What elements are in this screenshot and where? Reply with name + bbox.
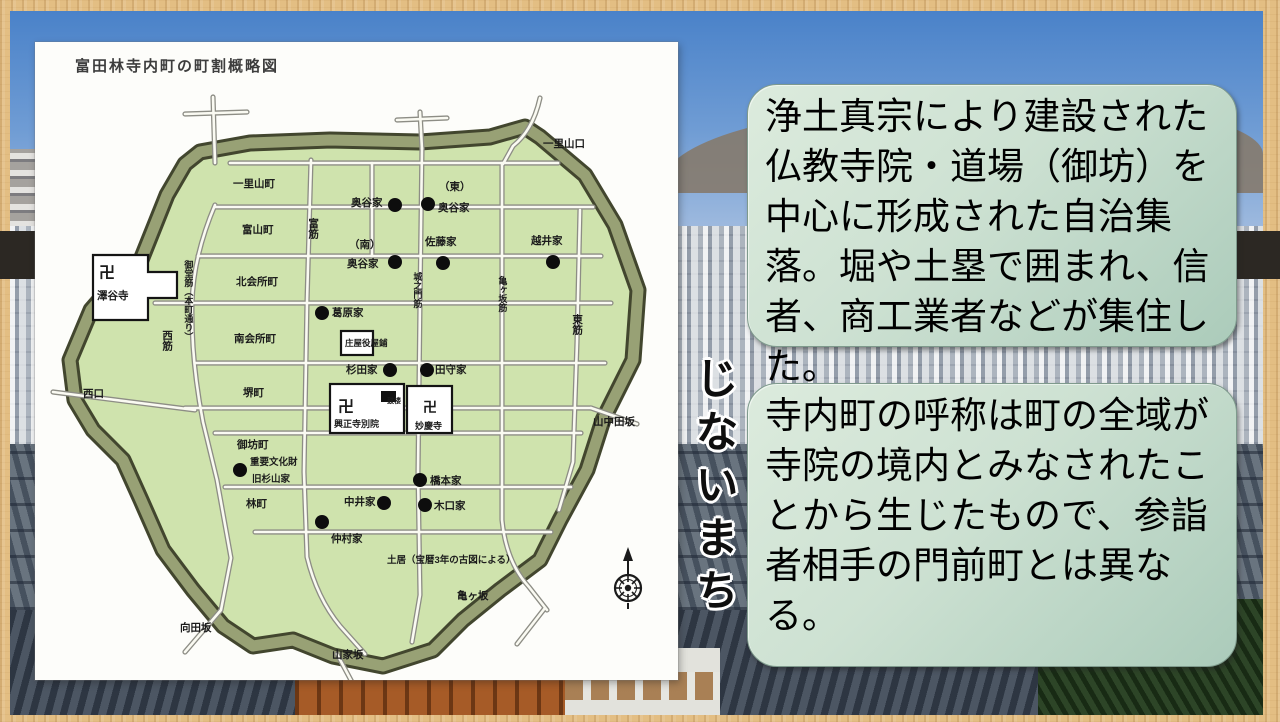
map-label-hayashicho: 林町: [246, 498, 267, 510]
map-label-myokeiji: 妙慶寺: [415, 421, 442, 431]
map-label-shoyayashiki: 庄屋役屋鋪: [345, 339, 388, 349]
map-label-koshiike: 越井家: [531, 235, 563, 247]
vertical-title-jinaimachi: じないまち: [682, 356, 744, 646]
map-label-nishisuji: 西筋: [161, 330, 173, 351]
map-label-doi-note: 土居（宝暦3年の古図による）: [387, 556, 516, 567]
map-label-okutani-higashi: 奥谷家: [438, 202, 470, 214]
map-label-tomiyamacho: 富山町: [242, 224, 274, 236]
map-label-mukaidazaka: 向田坂: [180, 622, 212, 634]
callout-text-definition: 浄土真宗により建設された仏教寺院・道場（御坊）を中心に形成された自治集落。堀や土…: [765, 92, 1219, 392]
map-label-sakaicho: 堺町: [243, 387, 264, 399]
manji-icon: 卍: [99, 266, 115, 282]
map-label-sugitake: 杉田家: [346, 364, 378, 376]
map-label-yamaiezaka: 山家坂: [332, 649, 364, 661]
map-label-ichiriyamaguchi: 一里山口: [543, 138, 585, 150]
dark-band-left: [0, 231, 36, 279]
callout-box-naming: 寺内町の呼称は町の全域が寺院の境内とみなされたことから生じたもので、参詣者相手の…: [747, 383, 1237, 667]
map-label-yamanakadazaka: 山中田坂: [593, 416, 635, 428]
map-label-okutani: 奥谷家: [351, 197, 383, 209]
map-label-koshoji-betsuin: 興正寺別院: [334, 419, 379, 429]
dark-band-right: [1234, 231, 1280, 279]
map-label-kyusugiyamake: 旧杉山家: [252, 475, 290, 486]
map-label-higashisuji: 東筋: [571, 314, 583, 335]
manji-icon: 卍: [423, 400, 437, 414]
map-label-nakamurake: 仲村家: [331, 533, 363, 545]
map-title: 富田林寺内町の町割概略図: [75, 55, 279, 76]
town-map-panel: 富田林寺内町の町割概略図 一里山町 富山町 北会所町 南会所町 堺町 御坊町 林…: [35, 42, 678, 680]
map-label-sawatanidera: 澤谷寺: [97, 290, 129, 302]
map-label-kitakaishocho: 北会所町: [236, 276, 278, 288]
map-label-ichiriyamacho: 一里山町: [233, 178, 275, 190]
map-label-koro: 鼓楼: [387, 398, 401, 406]
map-label-okutani-minami: 奥谷家: [347, 258, 379, 270]
map-label-midosuji: 御堂筋（本町通り）: [183, 260, 193, 341]
callout-box-definition: 浄土真宗により建設された仏教寺院・道場（御坊）を中心に形成された自治集落。堀や土…: [747, 84, 1237, 347]
map-label-hashimotoke: 橋本家: [430, 475, 462, 487]
map-label-tomisuji: 富筋: [307, 218, 319, 239]
map-label-higashi-paren: （東）: [439, 181, 471, 193]
map-label-jonomonsuji: 城之門筋: [412, 272, 422, 308]
map-label-kamegasakasuji: 亀ヶ坂筋: [497, 276, 507, 312]
callout-text-naming: 寺内町の呼称は町の全域が寺院の境内とみなされたことから生じたもので、参詣者相手の…: [765, 391, 1219, 641]
map-label-juyobunkazai: 重要文化財: [250, 458, 298, 469]
map-label-minamikaishocho: 南会所町: [234, 333, 276, 345]
slide-root: 富田林寺内町の町割概略図 一里山町 富山町 北会所町 南会所町 堺町 御坊町 林…: [0, 0, 1280, 722]
map-label-gobocho: 御坊町: [237, 439, 269, 451]
manji-icon: 卍: [338, 400, 354, 416]
map-label-nakaike: 中井家: [344, 496, 376, 508]
map-label-minami-paren: （南）: [349, 239, 381, 251]
map-label-kamegasaka: 亀ヶ坂: [457, 590, 489, 602]
map-label-satoke: 佐藤家: [425, 236, 457, 248]
map-label-kuzuharake: 葛原家: [332, 307, 364, 319]
map-label-nishiguchi: 西口: [83, 388, 104, 400]
map-label-tamorike: 田守家: [435, 364, 467, 376]
compass-rose: [615, 547, 641, 609]
map-label-kiguchike: 木口家: [434, 500, 466, 512]
